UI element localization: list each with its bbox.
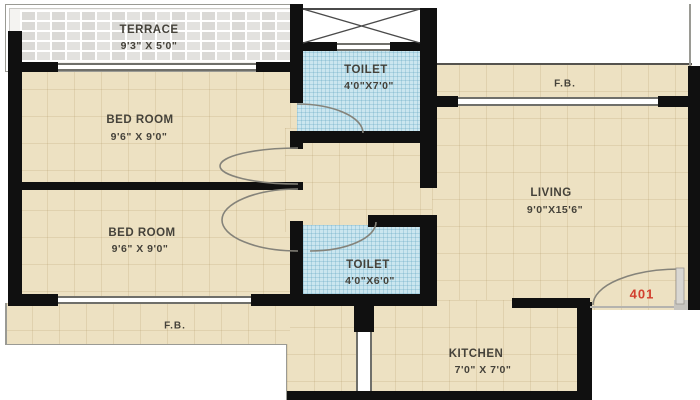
bedroom-1-dims: 9'6" X 9'0" <box>111 131 168 143</box>
toilet-2-label: TOILET <box>346 259 390 271</box>
toilet-2-dims: 4'0"X6'0" <box>345 275 395 287</box>
toilet-1-dims: 4'0"X7'0" <box>344 80 394 92</box>
door-arc-toilet-1 <box>297 104 363 133</box>
door-swing-layer <box>0 0 700 400</box>
living-dims: 9'0"X15'6" <box>527 204 583 216</box>
door-arc-bedroom-2 <box>222 189 298 251</box>
kitchen-label: KITCHEN <box>449 348 504 360</box>
entrance-door-leaf <box>676 268 684 304</box>
unit-number: 401 <box>630 287 655 302</box>
terrace-dims: 9'3" X 5'0" <box>121 40 178 52</box>
bedroom-2-dims: 9'6" X 9'0" <box>112 243 169 255</box>
bedroom-2-label: BED ROOM <box>108 227 175 239</box>
toilet-1-label: TOILET <box>344 64 388 76</box>
living-label: LIVING <box>530 187 571 199</box>
bedroom-1-label: BED ROOM <box>106 114 173 126</box>
terrace-label: TERRACE <box>119 24 178 36</box>
kitchen-dims: 7'0" X 7'0" <box>455 364 512 376</box>
fb-bottom-label: F.B. <box>164 321 186 332</box>
fb-top-label: F.B. <box>554 79 576 90</box>
door-arc-toilet-2 <box>310 222 376 251</box>
door-arc-bedroom-1 <box>220 148 298 184</box>
floor-plan: TERRACE 9'3" X 5'0" TOILET 4'0"X7'0" BED… <box>0 0 700 400</box>
shaft-cross-icon <box>303 9 420 43</box>
